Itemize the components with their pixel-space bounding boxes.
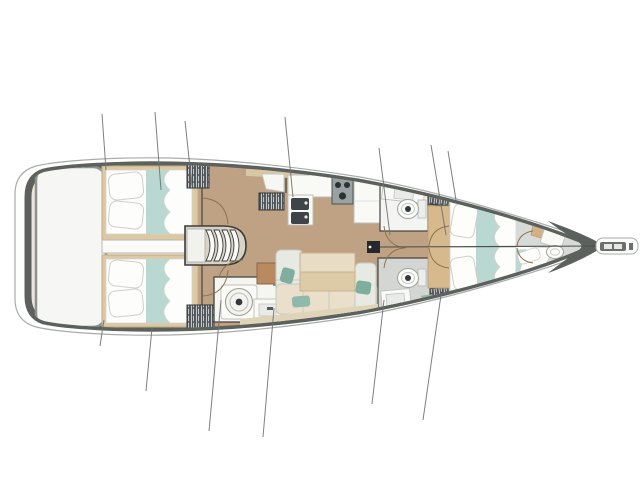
faucet [267,307,273,310]
engine-compartment [102,240,186,253]
pillow [449,203,478,239]
toilet-drain [405,275,411,281]
bowsprit [596,238,638,254]
burner [344,182,350,188]
toilet [398,269,427,288]
anchor-roller [600,242,626,251]
aft-cabin-port [102,166,198,242]
pillow [108,259,145,288]
pillow [108,171,145,200]
rig-line [372,300,384,404]
rig-line [146,328,152,391]
toilet [398,200,427,219]
steps-landing [187,229,205,262]
faucet [304,201,307,204]
aft-cabin-starboard [102,255,198,327]
toilet-tank [418,200,426,218]
rig-line [448,151,456,200]
anchor-roller-slot [604,244,612,249]
rig-line [423,295,441,420]
stove [332,178,353,204]
burner [339,192,346,199]
swim-platform [36,167,106,327]
faucet [304,215,307,218]
table [300,272,355,291]
yacht-floor-plan-screenshot [0,0,640,480]
anchor-roller-slot [614,244,622,249]
teal-cushion [292,295,311,308]
fridge [354,180,382,223]
pillow [108,200,145,229]
anchor-roller-band [629,243,633,250]
toilet-drain [236,299,243,306]
toilet-drain [405,206,411,212]
pillow [108,288,145,317]
yacht-floor-plan [0,0,640,480]
burner [335,182,341,188]
table-leaf [300,253,355,272]
toilet-tank [418,269,426,286]
galley-counter [288,175,334,197]
companionway-steps [185,226,246,265]
teal-cushion [355,280,372,295]
bow-sink [547,246,564,259]
wardrobe-galley [259,193,284,210]
mast-dot [369,246,372,249]
wardrobe-aft-starboard [187,305,214,329]
